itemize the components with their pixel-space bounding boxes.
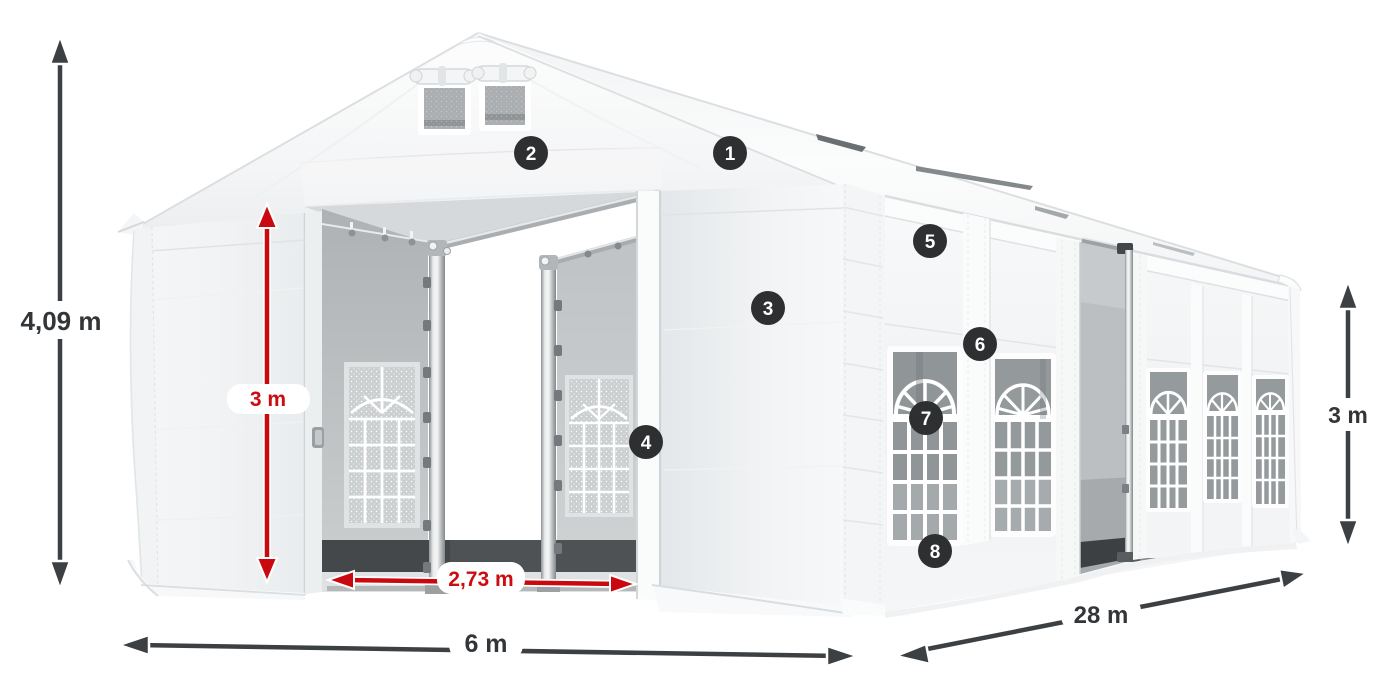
svg-text:28 m: 28 m <box>1074 602 1129 629</box>
svg-text:7: 7 <box>921 409 932 430</box>
svg-text:4: 4 <box>641 433 652 454</box>
svg-text:6: 6 <box>975 335 986 356</box>
svg-text:6 m: 6 m <box>464 630 507 658</box>
svg-text:1: 1 <box>725 144 736 165</box>
svg-text:2,73 m: 2,73 m <box>448 568 513 591</box>
svg-text:3 m: 3 m <box>250 388 286 411</box>
svg-text:3: 3 <box>763 299 774 320</box>
svg-text:8: 8 <box>930 542 941 563</box>
svg-text:3 m: 3 m <box>1328 402 1368 428</box>
svg-text:2: 2 <box>526 144 537 165</box>
svg-text:4,09 m: 4,09 m <box>21 306 102 336</box>
svg-text:5: 5 <box>925 232 936 253</box>
